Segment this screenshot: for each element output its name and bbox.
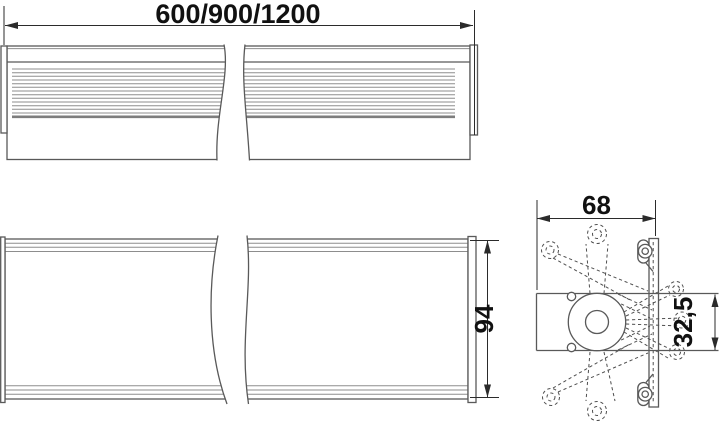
dim-arrow-down — [484, 385, 491, 398]
rotated-head-right-1 — [669, 282, 684, 297]
end-cap-left — [1, 237, 5, 403]
technical-drawing-canvas: 600/900/1200 94 — [0, 0, 720, 423]
dim-arrow-down — [712, 338, 719, 351]
rotated-head-upper-left — [542, 242, 559, 259]
dim-arrow-up — [712, 295, 719, 308]
luminaire-dimension-drawing: 600/900/1200 94 — [0, 0, 720, 423]
height-dimension-label: 94 — [469, 304, 499, 333]
dimension-width: 68 — [537, 190, 656, 290]
front-view: 94 — [1, 236, 499, 405]
rotated-head-bottom — [588, 402, 607, 421]
pivot-circle — [568, 293, 625, 350]
dim-arrow-right — [643, 215, 656, 222]
width-dimension-label: 68 — [582, 190, 611, 220]
mounting-hole-top — [638, 244, 652, 258]
fixture-body-front — [1, 236, 476, 405]
end-cap-left — [1, 46, 7, 133]
mounting-plate — [649, 239, 659, 408]
dim-arrow-left — [537, 215, 550, 222]
screw-top — [567, 292, 575, 300]
dim-arrow-right — [460, 22, 473, 29]
dim-arrow-up — [484, 241, 491, 254]
side-view: 68 32,5 — [537, 190, 719, 421]
rotated-head-top — [588, 225, 607, 244]
dim-arrow-left — [5, 22, 18, 29]
top-view: 600/900/1200 — [1, 0, 478, 161]
offset-dimension-label: 32,5 — [668, 297, 698, 348]
end-cap-right — [470, 45, 478, 135]
length-dimension-label: 600/900/1200 — [155, 0, 320, 29]
dimension-offset: 32,5 — [668, 295, 719, 351]
mounting-hole-bottom — [638, 387, 652, 401]
rotated-head-lower-left — [543, 389, 560, 406]
fixture-body-top — [1, 45, 478, 161]
screw-bottom — [567, 343, 575, 351]
